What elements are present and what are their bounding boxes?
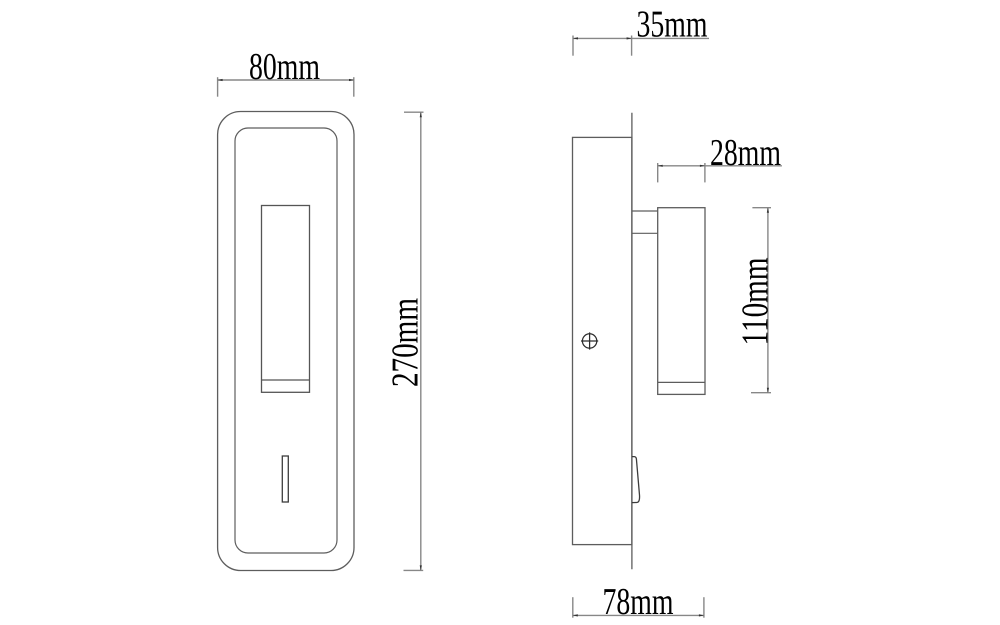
svg-text:270mm: 270mm bbox=[385, 298, 427, 387]
svg-text:35mm: 35mm bbox=[637, 4, 708, 46]
svg-text:28mm: 28mm bbox=[710, 132, 781, 174]
svg-text:110mm: 110mm bbox=[735, 258, 777, 346]
svg-text:80mm: 80mm bbox=[249, 46, 320, 88]
svg-text:78mm: 78mm bbox=[603, 581, 674, 623]
